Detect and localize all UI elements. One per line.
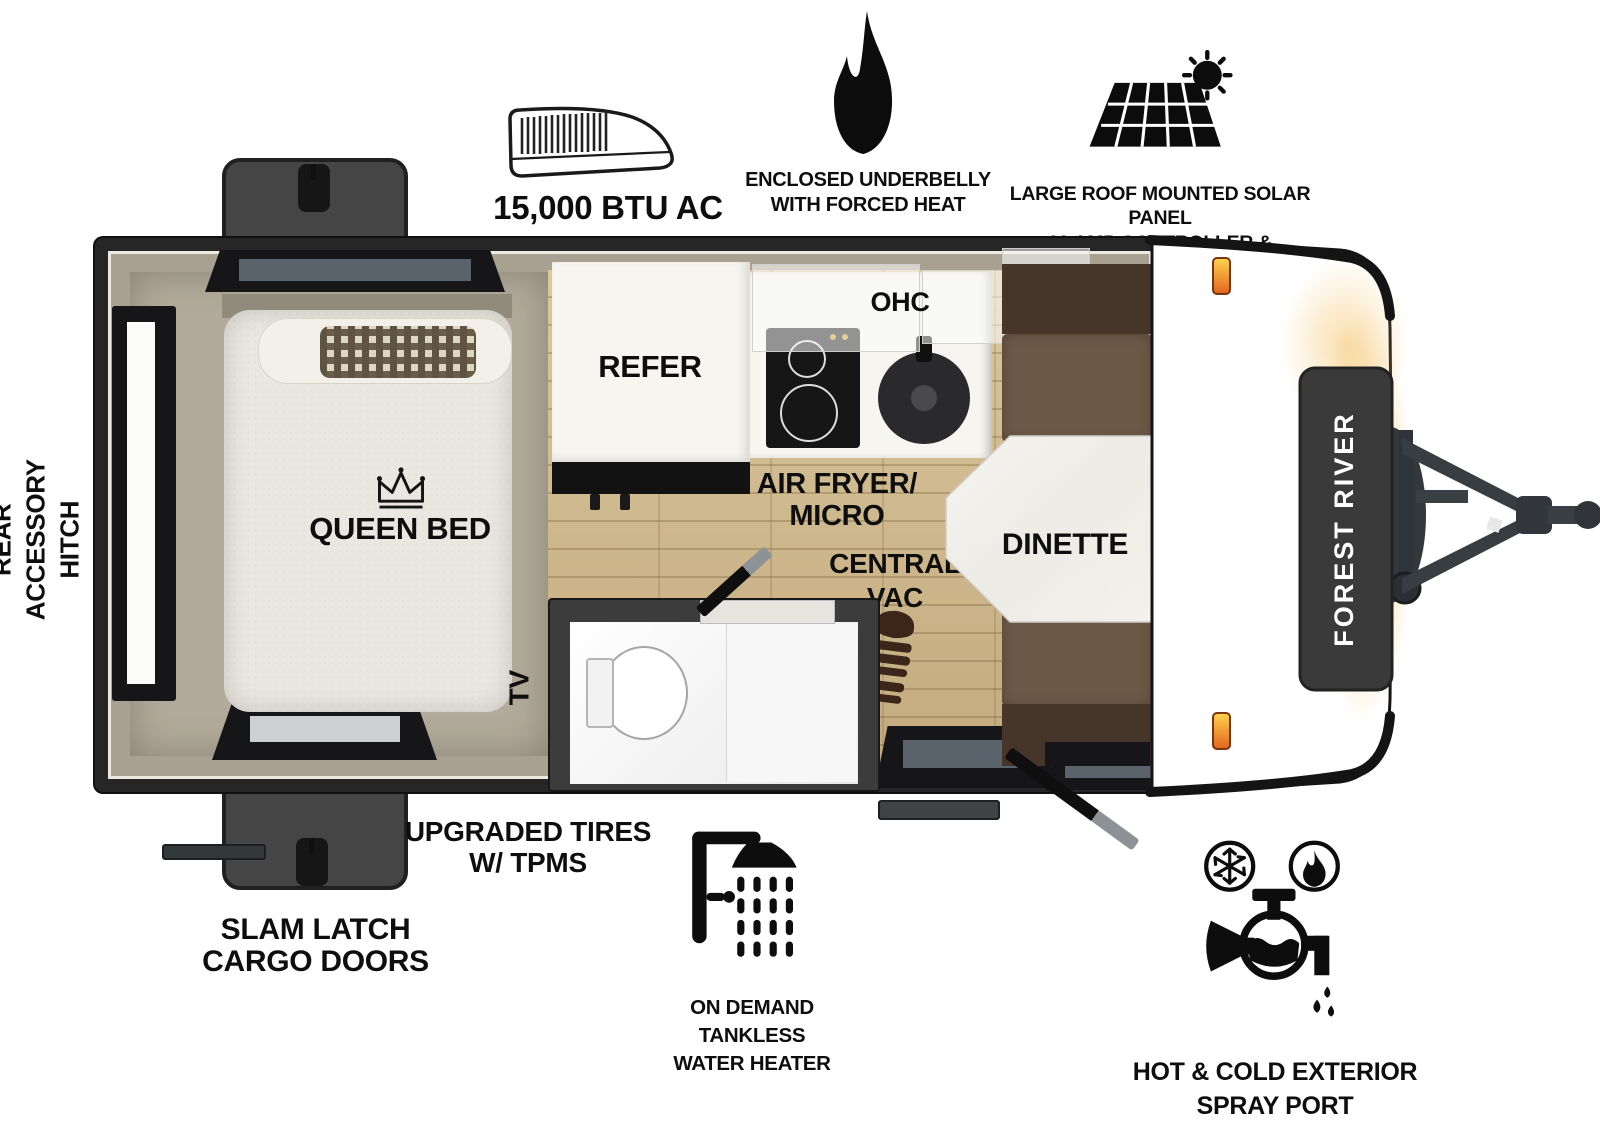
marker-light-icon <box>1213 713 1230 749</box>
front-cap: FOREST RIVER <box>1140 228 1600 808</box>
dinette-label: DINETTE <box>965 528 1165 562</box>
refer-label: REFER <box>560 350 740 385</box>
air-fryer-micro-label: AIR FRYER/ MICRO <box>707 468 967 533</box>
cabinet-handle <box>620 494 630 510</box>
flame-icon <box>1303 850 1326 887</box>
bathroom-vanity <box>700 600 835 624</box>
dinette-bench-seat <box>1002 334 1152 442</box>
tires-label: UPGRADED TIRES W/ TPMS <box>388 817 668 879</box>
marker-light-icon <box>1213 258 1230 294</box>
solar-panel-icon <box>1078 50 1242 166</box>
water-heater-label: ON DEMAND TANKLESS WATER HEATER <box>632 994 872 1078</box>
floorplan-diagram: 15,000 BTU AC ENCLOSED UNDERBELLY WITH F… <box>0 0 1600 1132</box>
toilet-tank <box>586 658 614 728</box>
ac-label: 15,000 BTU AC <box>458 190 758 227</box>
queen-bed-label: QUEEN BED <box>268 512 532 547</box>
spray-port-label: HOT & COLD EXTERIOR SPRAY PORT <box>1110 1056 1440 1124</box>
shower-icon <box>685 826 820 966</box>
kitchen-sink <box>878 352 970 444</box>
forest-river-badge: FOREST RIVER <box>1300 368 1392 690</box>
rooftop-ac-icon <box>498 96 698 196</box>
crown-icon <box>372 466 430 511</box>
stabilizer-jack <box>162 844 266 860</box>
brand-label: FOREST RIVER <box>1329 411 1359 647</box>
dinette-bench-backrest <box>1002 264 1152 334</box>
entry-well <box>1045 742 1150 766</box>
rear-window <box>112 306 176 701</box>
underbelly-label: ENCLOSED UNDERBELLY WITH FORCED HEAT <box>723 168 1013 218</box>
ohc-label: OHC <box>835 287 965 317</box>
tv-label: TV <box>503 648 534 728</box>
entry-step <box>878 800 1000 820</box>
bolster-pillow <box>320 326 476 378</box>
cabinet-handle <box>590 494 600 510</box>
cargo-latch-icon <box>296 838 328 886</box>
snowflake-icon <box>1215 849 1244 883</box>
top-bed-window <box>205 250 505 292</box>
cargo-doors-label: SLAM LATCH CARGO DOORS <box>163 914 468 978</box>
bottom-cargo-door <box>222 780 408 890</box>
flame-icon <box>812 8 914 158</box>
shower-stall <box>726 624 857 782</box>
spray-port-icon <box>1192 838 1352 1026</box>
cargo-latch-icon <box>298 164 330 212</box>
rear-accessory-hitch-label: REAR ACCESSORY HITCH <box>0 390 87 690</box>
valve-icon <box>1206 889 1334 1017</box>
